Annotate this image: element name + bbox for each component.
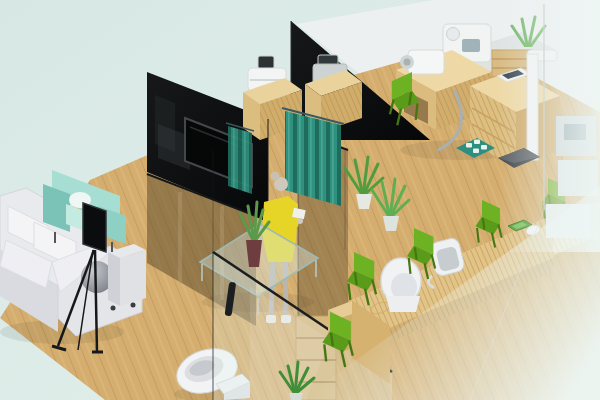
small-teal-curtain <box>226 123 254 194</box>
printer-display <box>258 56 274 69</box>
machine-screen <box>462 39 480 52</box>
hand <box>297 218 303 224</box>
scene-canvas <box>0 0 600 400</box>
hair-bun <box>271 172 280 181</box>
machine-knob <box>447 28 460 41</box>
easel-tv-screen <box>83 203 106 252</box>
isometric-clinic-render <box>0 0 600 400</box>
